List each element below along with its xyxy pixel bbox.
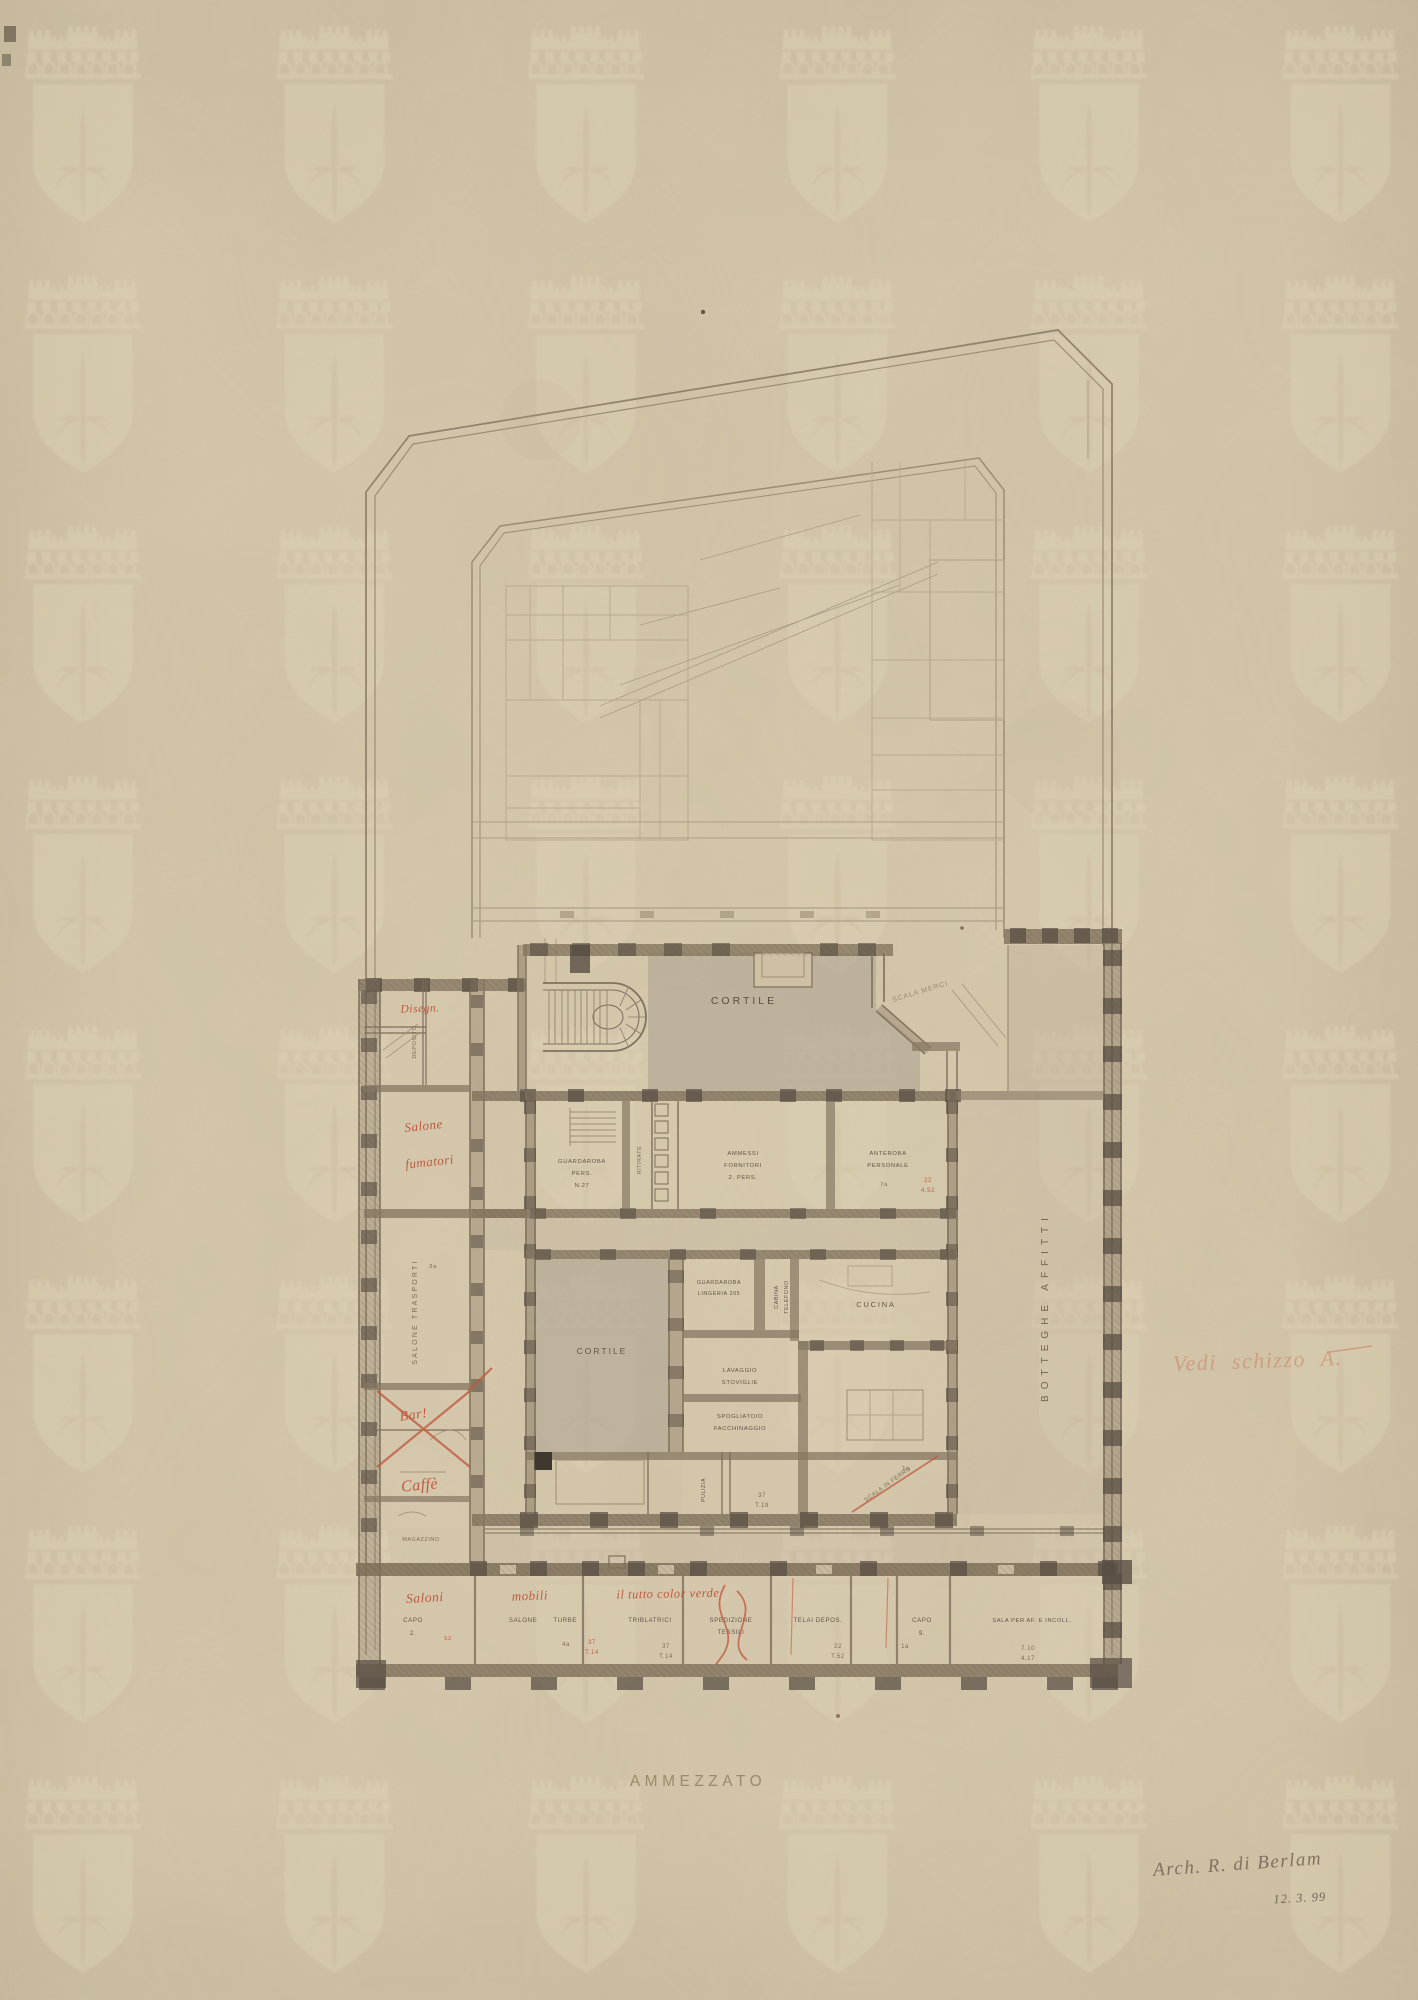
svg-text:N.27: N.27 <box>575 1183 590 1189</box>
svg-text:T.52: T.52 <box>831 1654 845 1660</box>
svg-text:TELEFONO: TELEFONO <box>784 1280 790 1314</box>
svg-text:TRIBLATRICI: TRIBLATRICI <box>628 1617 671 1624</box>
svg-text:T.14: T.14 <box>659 1654 673 1660</box>
svg-text:4.17: 4.17 <box>1021 1656 1035 1662</box>
svg-text:SALONE TRASPORTI: SALONE TRASPORTI <box>412 1259 419 1364</box>
svg-text:1a: 1a <box>902 1466 910 1472</box>
svg-text:DEPOSITO: DEPOSITO <box>412 1025 418 1058</box>
svg-text:CORTILE: CORTILE <box>711 995 777 1007</box>
svg-text:CABINA: CABINA <box>774 1285 780 1308</box>
svg-text:il tutto color verde: il tutto color verde <box>616 1586 719 1602</box>
svg-text:FACCHINAGGIO: FACCHINAGGIO <box>714 1426 766 1432</box>
svg-text:ANTEROBA: ANTEROBA <box>869 1151 906 1157</box>
svg-text:AMMEZZATO: AMMEZZATO <box>630 1773 766 1790</box>
svg-text:SPOGLIATOIO: SPOGLIATOIO <box>717 1414 763 1420</box>
svg-text:Saloni: Saloni <box>406 1589 444 1606</box>
svg-text:SALA PER AF. E INCOLL.: SALA PER AF. E INCOLL. <box>992 1618 1071 1624</box>
svg-text:37: 37 <box>588 1640 596 1646</box>
svg-text:SPEDIZIONE: SPEDIZIONE <box>710 1617 753 1624</box>
svg-text:PERSONALE: PERSONALE <box>867 1163 908 1169</box>
svg-text:7.10: 7.10 <box>1021 1646 1035 1652</box>
svg-text:BOTTEGHE AFFITTI: BOTTEGHE AFFITTI <box>1040 1212 1051 1402</box>
svg-text:T.14: T.14 <box>585 1650 599 1656</box>
svg-text:T.19: T.19 <box>755 1503 769 1509</box>
svg-text:37: 37 <box>758 1493 766 1499</box>
svg-text:CUCINA: CUCINA <box>856 1300 896 1309</box>
svg-text:2. PERS.: 2. PERS. <box>728 1175 757 1181</box>
svg-text:Caffè: Caffè <box>400 1475 439 1495</box>
svg-text:PULIZIA: PULIZIA <box>701 1478 707 1502</box>
svg-text:1a: 1a <box>901 1644 909 1650</box>
svg-text:AMMESSI: AMMESSI <box>727 1151 758 1157</box>
svg-text:FORNITORI: FORNITORI <box>724 1163 762 1169</box>
svg-text:TELAI DEPOS.: TELAI DEPOS. <box>794 1617 843 1624</box>
svg-text:4.52: 4.52 <box>921 1188 935 1194</box>
svg-text:52: 52 <box>444 1636 452 1642</box>
svg-text:CORTILE: CORTILE <box>577 1346 628 1356</box>
svg-text:2.: 2. <box>410 1630 416 1637</box>
svg-text:12. 3. 99: 12. 3. 99 <box>1273 1890 1326 1907</box>
svg-text:LAVAGGIO: LAVAGGIO <box>723 1368 757 1374</box>
svg-text:Disegn.: Disegn. <box>399 1002 439 1015</box>
svg-text:3a: 3a <box>429 1264 437 1270</box>
svg-text:STOVIGLIE: STOVIGLIE <box>722 1380 758 1386</box>
svg-text:22: 22 <box>924 1178 932 1184</box>
svg-text:MAGAZZINO: MAGAZZINO <box>402 1537 439 1543</box>
svg-text:9.: 9. <box>919 1630 925 1637</box>
svg-text:LINGERIA 205: LINGERIA 205 <box>698 1291 741 1297</box>
svg-text:22: 22 <box>834 1644 842 1650</box>
svg-text:RITIRATE: RITIRATE <box>637 1146 643 1175</box>
svg-text:7a: 7a <box>880 1182 888 1188</box>
svg-text:4a: 4a <box>562 1642 570 1648</box>
svg-text:GUARDAROBA: GUARDAROBA <box>697 1280 741 1286</box>
svg-text:mobili: mobili <box>511 1587 548 1603</box>
svg-text:SALONE TURBE: SALONE TURBE <box>509 1617 577 1624</box>
svg-text:CAPO: CAPO <box>912 1617 932 1624</box>
svg-text:PERS.: PERS. <box>572 1171 593 1177</box>
svg-text:GUARDAROBA: GUARDAROBA <box>558 1159 606 1165</box>
svg-text:CAPO: CAPO <box>403 1617 423 1624</box>
svg-text:37: 37 <box>662 1644 670 1650</box>
